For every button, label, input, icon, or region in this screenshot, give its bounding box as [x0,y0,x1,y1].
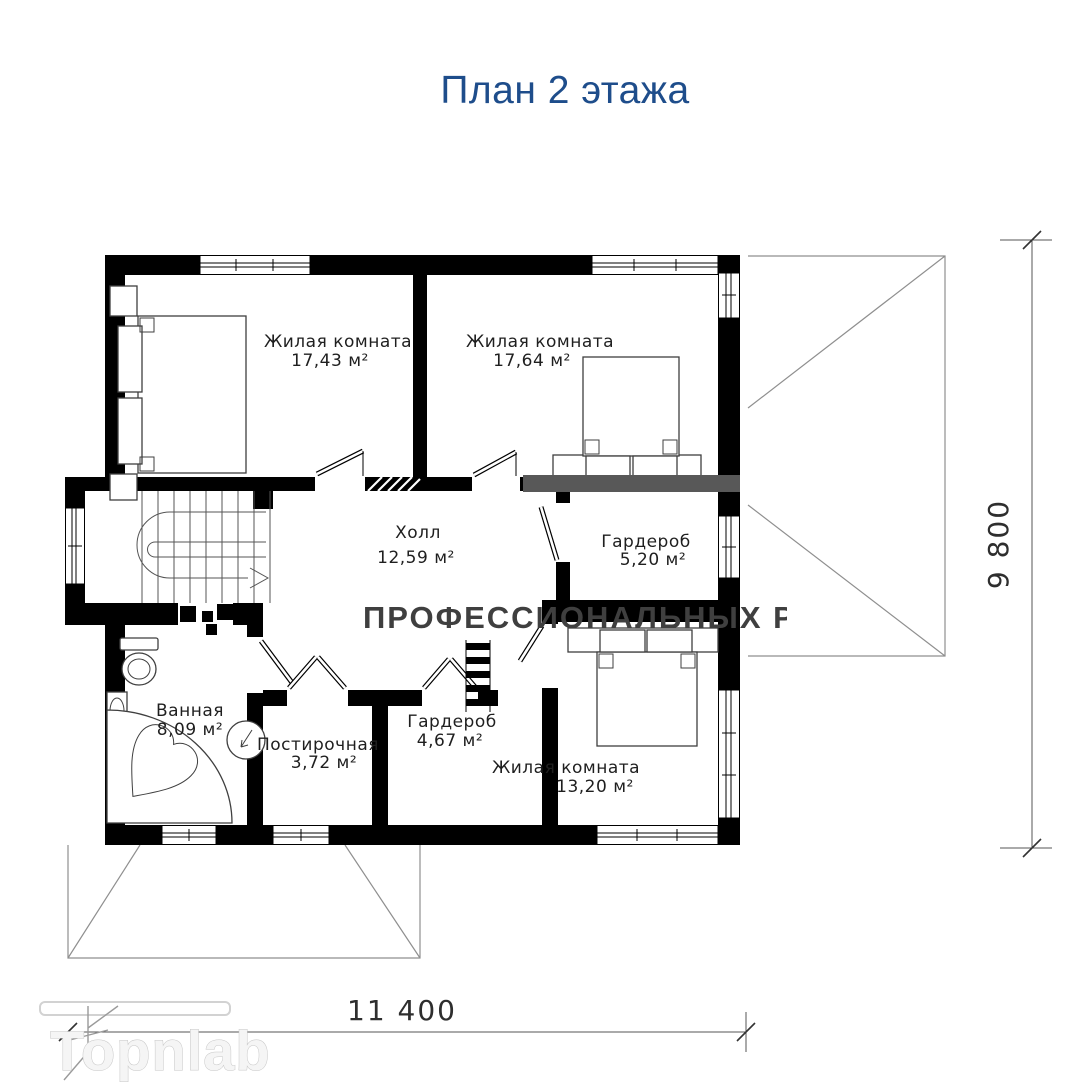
brand-logo-text: Topnlab [50,1019,271,1082]
svg-text:Жилая комната: Жилая комната [492,758,640,778]
bed-living-1 [110,286,246,500]
window-stair-bay [65,508,85,584]
svg-text:Жилая комната: Жилая комната [466,332,614,352]
window-right-1 [718,273,740,318]
door-living-1 [317,451,363,476]
roof-outline-right [748,256,945,656]
watermark-band [523,475,740,492]
svg-text:Жилая комната: Жилая комната [264,332,412,352]
staircase [137,491,270,603]
watermark-text: ПРОФЕССИОНАЛЬНЫХ РИЕЛТОРОВ [363,600,986,635]
window-top-right [592,255,718,275]
dimension-horizontal-label: 11 400 [347,994,457,1027]
door-wardrobe-1 [541,507,557,560]
bed-living-2 [553,357,701,478]
label-wardrobe-1: Гардероб 5,20 м² [601,532,690,570]
window-right-3 [718,690,740,818]
toilet [120,638,158,685]
svg-text:4,67 м²: 4,67 м² [417,731,483,751]
svg-text:Холл: Холл [395,523,441,543]
bed-living-3 [568,628,718,746]
svg-text:3,72 м²: 3,72 м² [291,753,357,773]
label-laundry: Постирочная 3,72 м² [257,735,379,773]
svg-text:Ванная: Ванная [156,701,224,721]
svg-text:12,59 м²: 12,59 м² [377,548,455,568]
svg-text:8,09 м²: 8,09 м² [157,720,223,740]
window-top-left [200,255,310,275]
shelf-ladder [466,640,490,712]
label-wardrobe-2: Гардероб 4,67 м² [407,712,496,751]
svg-text:17,64 м²: 17,64 м² [493,351,571,371]
door-living-2 [474,452,516,476]
label-living-3: Жилая комната 13,20 м² [492,758,640,797]
roof-outline-bottom-left [68,845,420,958]
window-right-2 [718,516,740,578]
svg-text:5,20 м²: 5,20 м² [620,550,686,570]
dimension-vertical: 9 800 [982,231,1052,857]
svg-text:Гардероб: Гардероб [601,532,690,552]
door-bathroom [261,641,293,684]
svg-text:Гардероб: Гардероб [407,712,496,732]
svg-text:Постирочная: Постирочная [257,735,379,755]
window-bottom-2 [273,825,329,845]
door-laundry [289,657,345,688]
label-hall: Холл 12,59 м² [377,523,455,568]
window-bottom-3 [597,825,718,845]
dimension-vertical-label: 9 800 [982,499,1015,589]
stair-direction-arrow [250,568,268,588]
label-bathroom: Ванная 8,09 м² [156,701,224,740]
brand-logo: Topnlab [40,1002,271,1082]
label-living-1: Жилая комната 17,43 м² [264,332,412,371]
svg-text:13,20 м²: 13,20 м² [556,777,634,797]
page-title: План 2 этажа [440,69,689,112]
floor-plan-drawing: 9 800 11 400 [0,0,1080,1092]
window-bottom-1 [162,825,216,845]
svg-text:17,43 м²: 17,43 м² [291,351,369,371]
floor-plan-page: 9 800 11 400 [0,0,1080,1092]
